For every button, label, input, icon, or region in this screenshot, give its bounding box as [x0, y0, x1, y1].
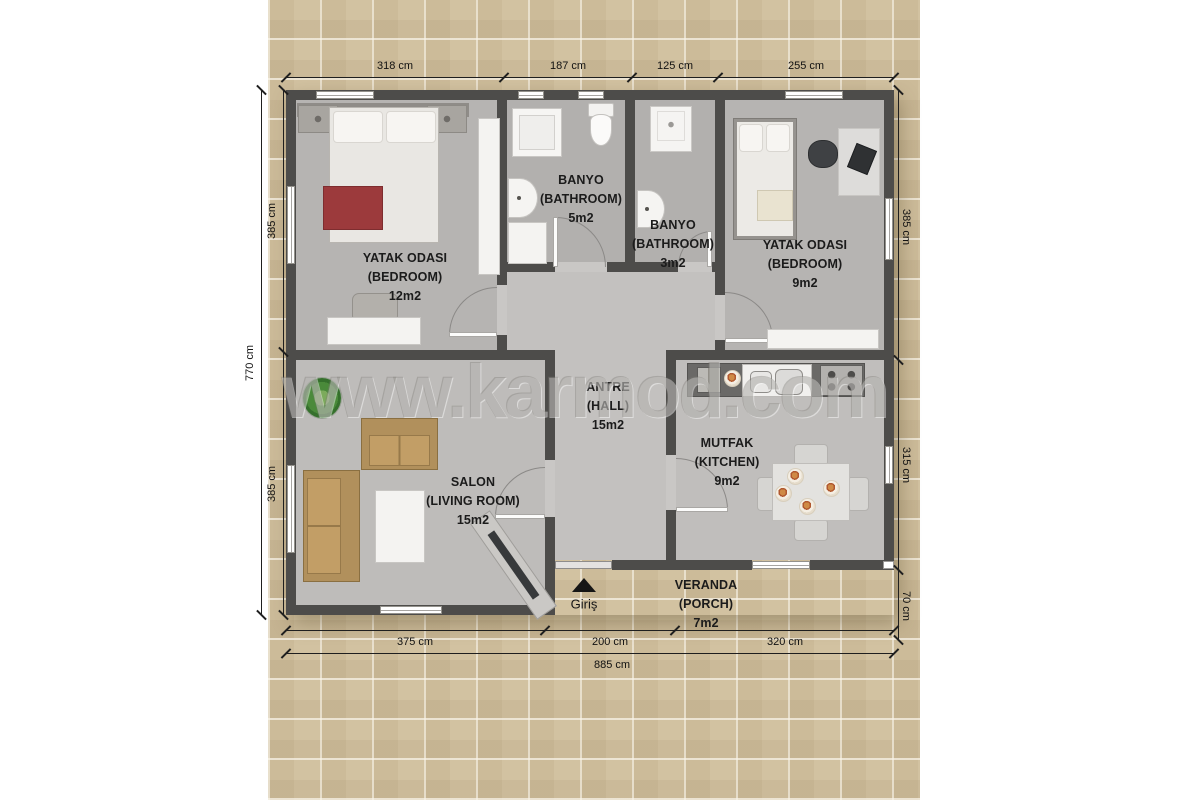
room-name: MUTFAK	[695, 434, 760, 453]
window-bedroom2-top	[785, 91, 843, 99]
room-name-en: (BEDROOM)	[763, 255, 847, 274]
floor-plan-canvas: YATAK ODASI (BEDROOM) 12m2 BANYO (BATHRO…	[0, 0, 1200, 800]
pillow	[386, 111, 436, 143]
pillow	[333, 111, 383, 143]
wall-bedroom2-left-a	[715, 100, 725, 295]
dining-chair	[847, 477, 869, 511]
room-name: YATAK ODASI	[363, 249, 447, 268]
room-area: 15m2	[426, 510, 520, 529]
window-bathroom1-a	[518, 91, 544, 99]
room-area: 15m2	[586, 415, 630, 434]
dimension-label-left-770: 770 cm	[244, 345, 256, 381]
label-kitchen: MUTFAK (KITCHEN) 9m2	[695, 434, 760, 490]
sofa	[303, 470, 360, 582]
dimension-label-top-318: 318 cm	[377, 60, 413, 72]
microwave	[697, 367, 721, 393]
dimension-label-top-125: 125 cm	[657, 60, 693, 72]
entrance-label: Giriş	[571, 597, 598, 612]
entrance-threshold	[555, 561, 612, 569]
wall-kitchen-bottom	[810, 560, 894, 570]
dimension-label-right-70: 70 cm	[900, 591, 912, 621]
door-leaf-bedroom1	[449, 332, 497, 337]
dining-chair	[794, 519, 828, 541]
room-name-en: (KITCHEN)	[695, 453, 760, 472]
label-bathroom1: BANYO (BATHROOM) 5m2	[540, 171, 622, 227]
dimension-label-bottom-885: 885 cm	[594, 659, 630, 671]
wardrobe-bedroom2	[767, 329, 879, 349]
door-leaf-kitchen	[676, 507, 728, 512]
room-name: BANYO	[632, 216, 714, 235]
window-bedroom1-left	[287, 186, 295, 264]
room-name-en: (HALL)	[586, 397, 630, 416]
room-area: 12m2	[363, 286, 447, 305]
room-name: SALON	[426, 473, 520, 492]
squat-toilet	[650, 106, 692, 152]
label-bathroom2: BANYO (BATHROOM) 3m2	[632, 216, 714, 272]
toilet	[587, 103, 613, 148]
dimension-line-bottom-inner	[286, 630, 894, 631]
coffee-table	[375, 490, 425, 563]
wardrobe-bedroom1	[478, 118, 500, 275]
label-bedroom1: YATAK ODASI (BEDROOM) 12m2	[363, 249, 447, 305]
room-area: 3m2	[632, 253, 714, 272]
wall-hall-bottom	[612, 560, 752, 570]
bathroom1-cabinet	[508, 222, 547, 264]
dimension-line-top	[286, 77, 894, 78]
dimension-label-right-315: 315 cm	[900, 447, 912, 483]
plate	[799, 498, 816, 515]
window-kitchen-right	[885, 446, 893, 484]
window-bathroom1-b	[578, 91, 604, 99]
door-threshold-bedroom2	[715, 295, 725, 340]
dimension-label-bottom-375: 375 cm	[397, 636, 433, 648]
room-name-en: (BATHROOM)	[632, 235, 714, 254]
cream-blanket	[757, 190, 793, 221]
dimension-label-top-255: 255 cm	[788, 60, 824, 72]
plate	[775, 485, 792, 502]
dimension-line-right	[898, 90, 899, 640]
wall-kitchen-left-b	[666, 510, 676, 570]
dimension-line-bottom-outer	[286, 653, 894, 654]
pillow	[739, 124, 763, 152]
dimension-label-right-385: 385 cm	[900, 209, 912, 245]
wall-salon-hall-a	[545, 355, 555, 460]
wall-kitchen-left-a	[666, 360, 676, 455]
window-bedroom1-top	[316, 91, 374, 99]
room-area: 9m2	[695, 471, 760, 490]
door-leaf-bedroom2	[725, 338, 773, 343]
office-chair	[808, 140, 838, 168]
wall-kitchen-top	[666, 350, 894, 360]
dimension-label-bottom-320: 320 cm	[767, 636, 803, 648]
kitchen-sink	[742, 364, 812, 397]
label-living-room: SALON (LIVING ROOM) 15m2	[426, 473, 520, 529]
label-bedroom2: YATAK ODASI (BEDROOM) 9m2	[763, 236, 847, 292]
room-name: ANTRE	[586, 378, 630, 397]
room-name: BANYO	[540, 171, 622, 190]
stove	[820, 365, 863, 396]
window-bedroom2-right	[885, 198, 893, 260]
dimension-label-bottom-200: 200 cm	[592, 636, 628, 648]
entrance-arrow-icon	[572, 578, 596, 592]
window-kitchen-bottom	[752, 561, 810, 569]
label-porch: VERANDA (PORCH) 7m2	[675, 576, 738, 632]
room-area: 5m2	[540, 208, 622, 227]
dimension-label-top-187: 187 cm	[550, 60, 586, 72]
red-blanket	[323, 186, 383, 230]
room-name-en: (BATHROOM)	[540, 190, 622, 209]
desk-bedroom1	[327, 317, 421, 345]
dimension-line-left-outer	[261, 90, 262, 615]
plate	[787, 468, 804, 485]
door-threshold-living	[545, 460, 555, 517]
plate	[724, 370, 741, 387]
loveseat	[361, 418, 438, 470]
wall-bedroom1-salon	[286, 350, 555, 360]
window-living-left	[287, 465, 295, 553]
shower-tray	[512, 108, 562, 157]
room-name: VERANDA	[675, 576, 738, 595]
label-hall: ANTRE (HALL) 15m2	[586, 378, 630, 434]
door-threshold-bedroom1	[497, 285, 507, 335]
room-name-en: (BEDROOM)	[363, 268, 447, 287]
door-threshold-kitchen	[666, 455, 676, 510]
floor-hall-upper	[507, 272, 715, 360]
window-living-bottom	[380, 606, 442, 614]
potted-plant	[303, 378, 341, 418]
room-area: 7m2	[675, 613, 738, 632]
dimension-label-left-385b: 385 cm	[266, 466, 278, 502]
room-area: 9m2	[763, 273, 847, 292]
plate	[823, 480, 840, 497]
room-name-en: (PORCH)	[675, 595, 738, 614]
wall-right	[884, 90, 894, 570]
room-name-en: (LIVING ROOM)	[426, 492, 520, 511]
dimension-label-left-385a: 385 cm	[266, 203, 278, 239]
pillow	[766, 124, 790, 152]
room-name: YATAK ODASI	[763, 236, 847, 255]
